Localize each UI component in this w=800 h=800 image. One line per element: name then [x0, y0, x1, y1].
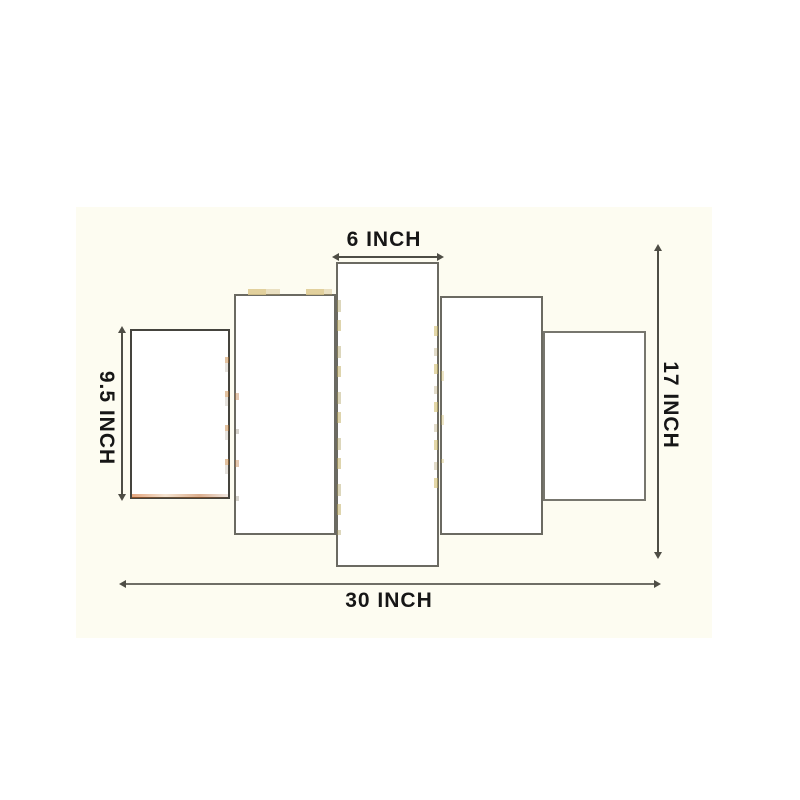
dimension-line-total-width	[125, 583, 655, 585]
canvas-panel-5	[543, 331, 646, 501]
dimension-line-side-height	[121, 332, 123, 495]
label-side-panel-height: 9.5 INCH	[94, 343, 118, 493]
canvas-panel-4	[440, 296, 543, 535]
label-total-width: 30 INCH	[311, 589, 467, 613]
label-total-height: 17 INCH	[658, 330, 682, 480]
canvas-panel-2	[234, 294, 336, 535]
dimension-diagram: 6 INCH 30 INCH 9.5 INCH 17 INCH	[0, 0, 800, 800]
dimension-line-center-width	[338, 256, 438, 258]
label-center-panel-width: 6 INCH	[309, 228, 459, 252]
canvas-panel-3-center	[336, 262, 439, 567]
canvas-panel-1	[130, 329, 230, 499]
